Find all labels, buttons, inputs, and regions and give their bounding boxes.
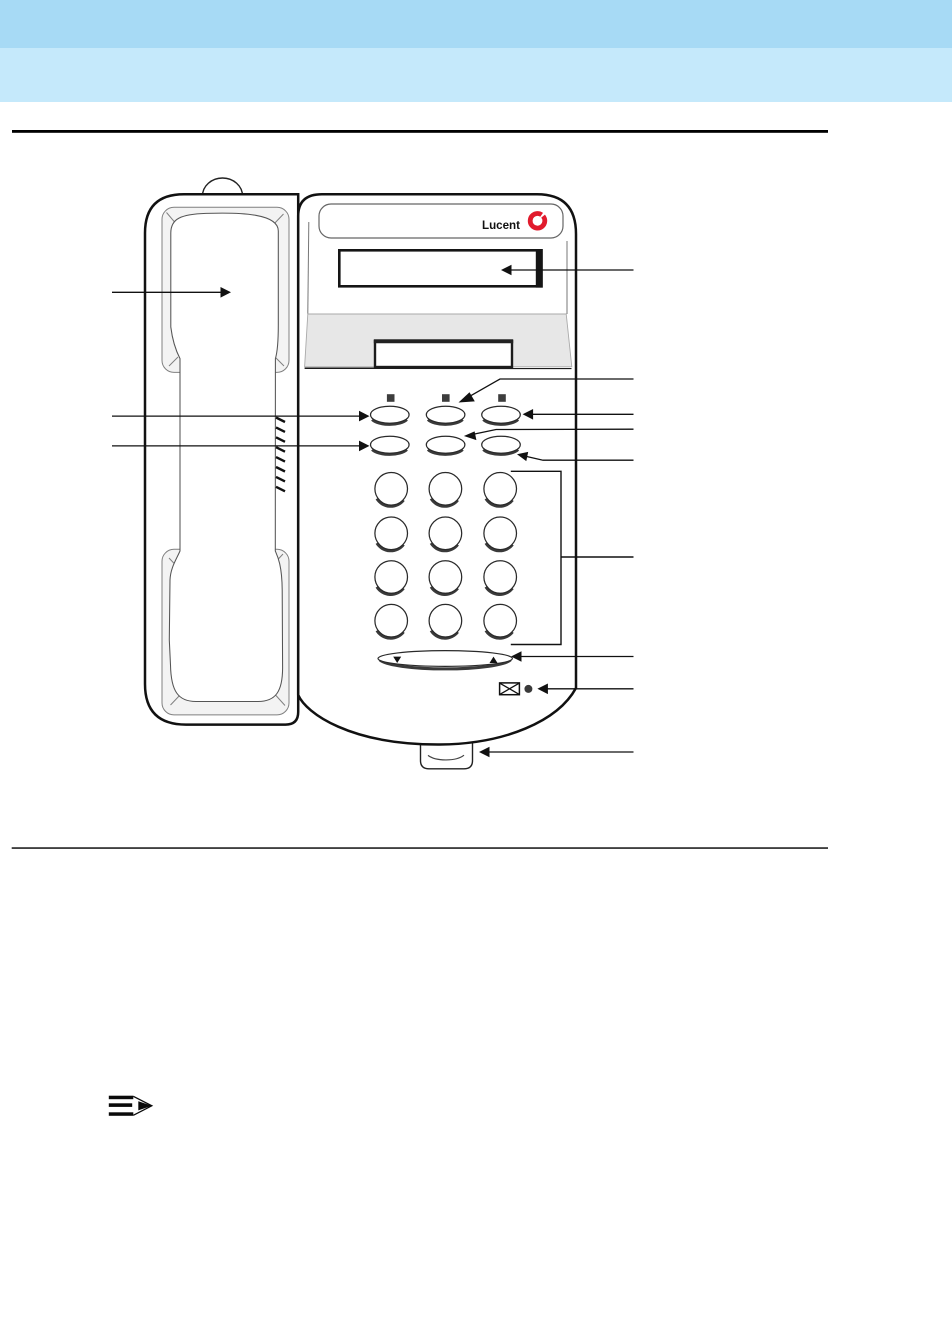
svg-text:Lucent: Lucent bbox=[482, 219, 520, 232]
